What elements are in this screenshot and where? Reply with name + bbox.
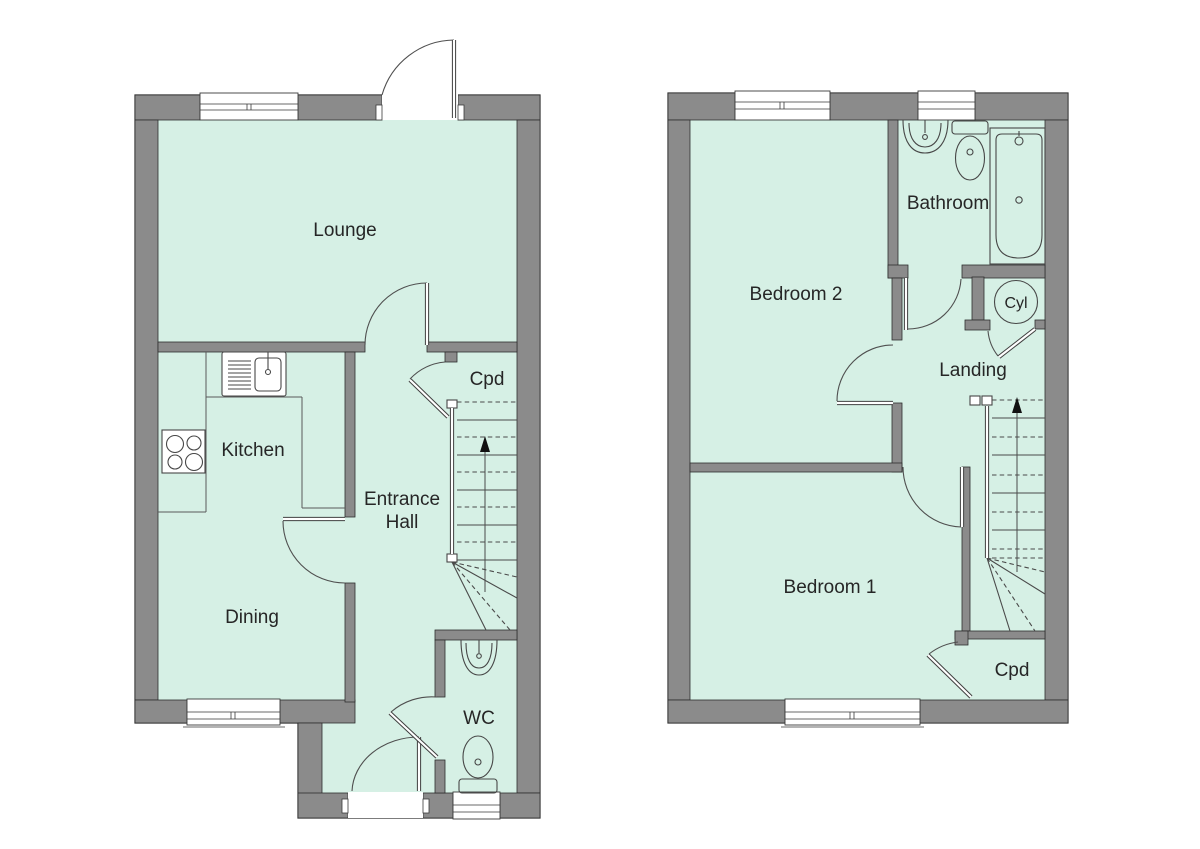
- window-dining: [183, 699, 285, 727]
- room-label-bathroom: Bathroom: [907, 193, 989, 214]
- room-label-dining: Dining: [225, 607, 279, 628]
- first-floor-plate: [668, 93, 1068, 723]
- room-label-bedroom1: Bedroom 1: [784, 577, 877, 598]
- room-label-wc: WC: [463, 708, 495, 729]
- window-wc: [453, 792, 500, 819]
- kitchen-sink: [222, 352, 286, 396]
- floorplan-svg: Lounge Kitchen Entrance Hall Cpd Dining …: [0, 0, 1200, 849]
- window-bedroom1: [781, 699, 924, 727]
- room-label-cpd-ground: Cpd: [470, 369, 505, 390]
- room-label-bedroom2: Bedroom 2: [750, 284, 843, 305]
- room-label-entrance-hall-line2: Hall: [386, 512, 419, 533]
- first-floor-plan: Bedroom 2 Bathroom Cyl Landing Bedroom 1…: [668, 91, 1068, 727]
- room-label-lounge: Lounge: [313, 220, 376, 241]
- window-lounge: [200, 93, 298, 120]
- front-door: [376, 40, 464, 120]
- room-label-entrance-hall-line1: Entrance: [364, 489, 440, 510]
- room-label-cyl: Cyl: [1004, 295, 1027, 312]
- room-label-cpd-first: Cpd: [995, 660, 1030, 681]
- room-label-landing: Landing: [939, 360, 1007, 381]
- ground-floor-plan: Lounge Kitchen Entrance Hall Cpd Dining …: [135, 40, 540, 819]
- floorplan-canvas: Lounge Kitchen Entrance Hall Cpd Dining …: [0, 0, 1200, 849]
- kitchen-hob: [162, 430, 205, 473]
- window-bedroom2: [735, 91, 830, 120]
- window-bathroom: [918, 91, 975, 120]
- room-label-kitchen: Kitchen: [221, 440, 284, 461]
